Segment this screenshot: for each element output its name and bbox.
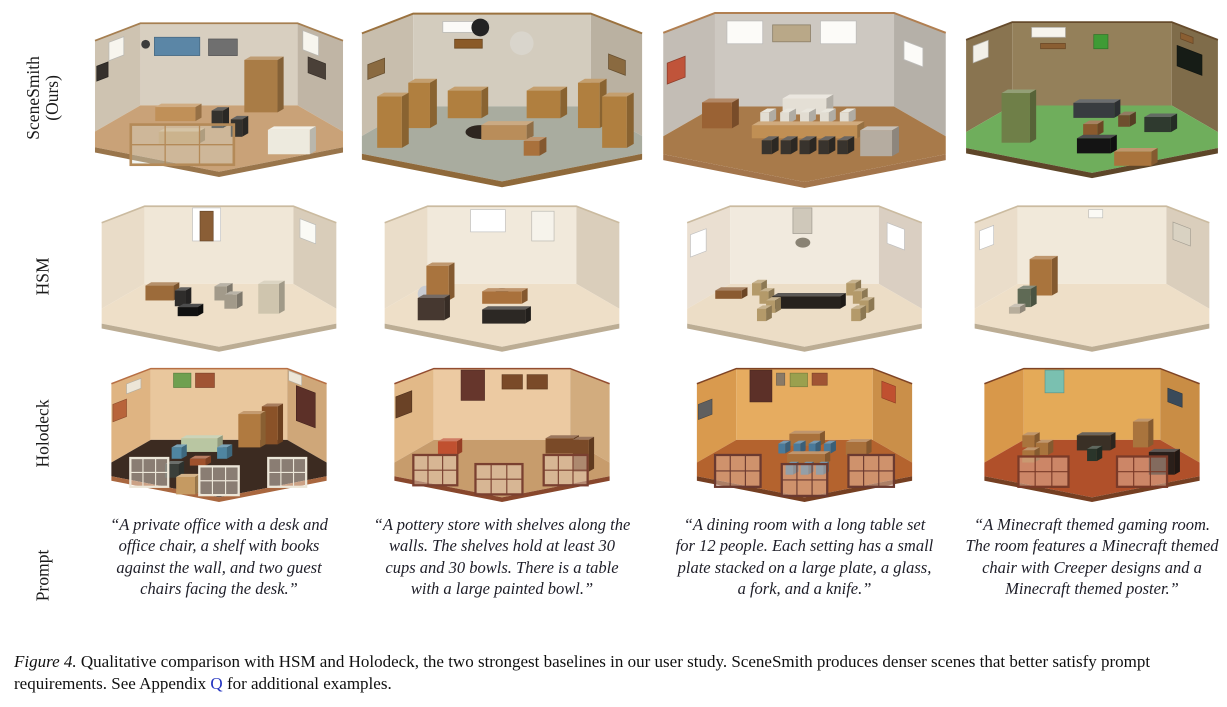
row-label-hsm-line1: HSM — [34, 258, 53, 296]
figure-page: SceneSmith (Ours) HSM Holodeck — [0, 0, 1227, 707]
prompt-cell-office: “A private office with a desk and office… — [86, 508, 352, 642]
scene-holodeck-dining-room — [652, 358, 957, 508]
scene-scenesmith-dining-room — [652, 0, 957, 195]
prompt-office: “A private office with a desk and office… — [94, 514, 344, 600]
scene-holodeck-minecraft-room — [957, 358, 1227, 508]
row-label-prompt-line1: Prompt — [34, 549, 53, 601]
row-label-prompt: Prompt — [0, 508, 86, 642]
row-label-holodeck: Holodeck — [0, 358, 86, 508]
row-label-scenesmith: SceneSmith (Ours) — [0, 0, 86, 195]
prompt-cell-minecraft: “A Minecraft themed gaming room. The roo… — [957, 508, 1227, 642]
prompt-pottery: “A pottery store with shelves along the … — [373, 514, 631, 600]
prompt-minecraft: “A Minecraft themed gaming room. The roo… — [965, 514, 1219, 600]
prompt-cell-dining: “A dining room with a long table set for… — [652, 508, 957, 642]
scene-hsm-private-office — [86, 195, 352, 358]
scene-holodeck-private-office — [86, 358, 352, 508]
comparison-grid: SceneSmith (Ours) HSM Holodeck — [0, 0, 1227, 642]
row-label-scenesmith-line2: (Ours) — [43, 56, 62, 140]
scene-hsm-pottery-store — [352, 195, 652, 358]
scene-holodeck-pottery-store — [352, 358, 652, 508]
caption-suffix: for additional examples. — [223, 674, 392, 693]
appendix-q-link[interactable]: Q — [210, 674, 222, 693]
prompt-cell-pottery: “A pottery store with shelves along the … — [352, 508, 652, 642]
figure-number: Figure 4. — [14, 652, 77, 671]
figure-caption: Figure 4. Qualitative comparison with HS… — [0, 642, 1227, 696]
caption-body: Qualitative comparison with HSM and Holo… — [14, 652, 1150, 693]
scene-hsm-dining-room — [652, 195, 957, 358]
row-label-scenesmith-line1: SceneSmith — [24, 56, 43, 140]
scene-scenesmith-minecraft-room — [957, 0, 1227, 195]
row-label-holodeck-line1: Holodeck — [34, 399, 53, 467]
scene-hsm-minecraft-room — [957, 195, 1227, 358]
prompt-dining: “A dining room with a long table set for… — [676, 514, 934, 600]
scene-scenesmith-private-office — [86, 0, 352, 195]
row-label-hsm: HSM — [0, 195, 86, 358]
scene-scenesmith-pottery-store — [352, 0, 652, 195]
